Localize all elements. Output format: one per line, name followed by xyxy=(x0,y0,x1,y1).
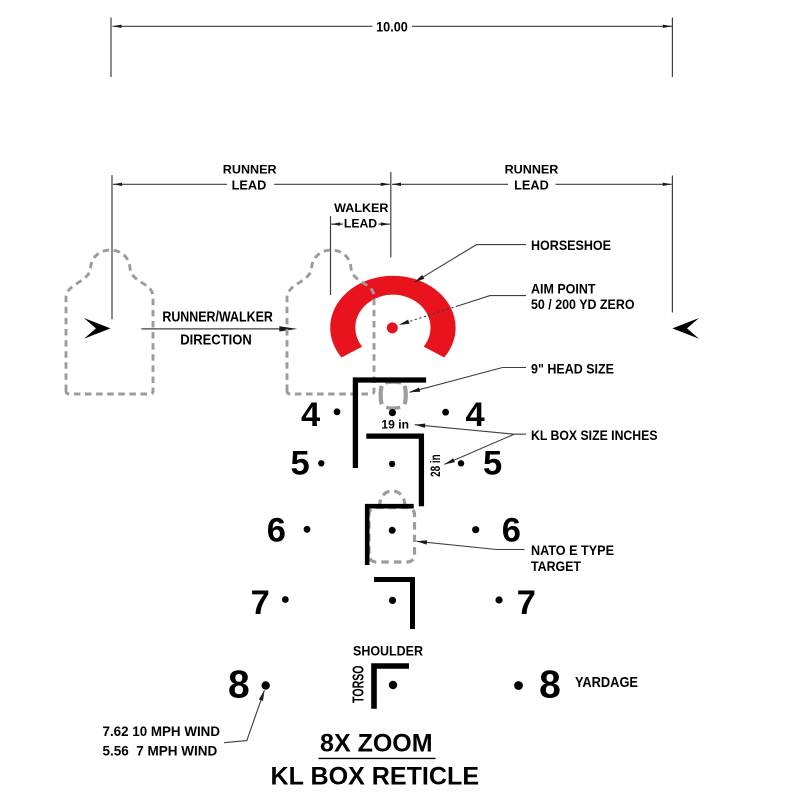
svg-text:7.62 10 MPH WIND: 7.62 10 MPH WIND xyxy=(103,723,221,739)
svg-text:DIRECTION: DIRECTION xyxy=(180,332,252,349)
svg-text:TORSO: TORSO xyxy=(351,665,368,703)
svg-text:5: 5 xyxy=(291,445,310,483)
svg-text:50 / 200 YD ZERO: 50 / 200 YD ZERO xyxy=(531,296,635,312)
svg-text:19 in: 19 in xyxy=(381,418,409,432)
svg-text:LEAD: LEAD xyxy=(232,178,267,193)
svg-text:RUNNER/WALKER: RUNNER/WALKER xyxy=(162,309,273,326)
svg-text:TARGET: TARGET xyxy=(531,558,581,574)
svg-text:5.56 7 MPH WIND: 5.56 7 MPH WIND xyxy=(103,743,218,759)
svg-text:KL BOX SIZE INCHES: KL BOX SIZE INCHES xyxy=(531,427,658,443)
svg-text:7: 7 xyxy=(251,584,270,622)
svg-text:6: 6 xyxy=(502,511,521,549)
svg-text:9" HEAD SIZE: 9" HEAD SIZE xyxy=(531,361,614,377)
svg-text:8X ZOOM: 8X ZOOM xyxy=(320,730,433,758)
svg-text:7: 7 xyxy=(517,584,536,622)
svg-text:NATO E TYPE: NATO E TYPE xyxy=(531,542,614,558)
svg-text:8: 8 xyxy=(228,663,250,706)
svg-text:8: 8 xyxy=(539,663,561,706)
svg-text:4: 4 xyxy=(301,396,320,434)
svg-text:YARDAGE: YARDAGE xyxy=(575,674,638,691)
svg-text:LEAD: LEAD xyxy=(344,217,378,231)
svg-text:RUNNER: RUNNER xyxy=(223,163,277,177)
svg-text:KL BOX RETICLE: KL BOX RETICLE xyxy=(271,763,480,791)
svg-text:LEAD: LEAD xyxy=(514,178,549,193)
svg-text:5: 5 xyxy=(483,445,502,483)
svg-text:RUNNER: RUNNER xyxy=(505,163,559,177)
svg-text:AIM POINT: AIM POINT xyxy=(531,281,596,297)
svg-text:10.00: 10.00 xyxy=(376,19,408,35)
svg-text:HORSESHOE: HORSESHOE xyxy=(531,237,611,253)
svg-text:WALKER: WALKER xyxy=(334,201,389,215)
svg-text:6: 6 xyxy=(267,511,286,549)
svg-text:4: 4 xyxy=(466,396,485,434)
svg-text:28 in: 28 in xyxy=(427,454,443,477)
svg-text:SHOULDER: SHOULDER xyxy=(353,643,423,659)
